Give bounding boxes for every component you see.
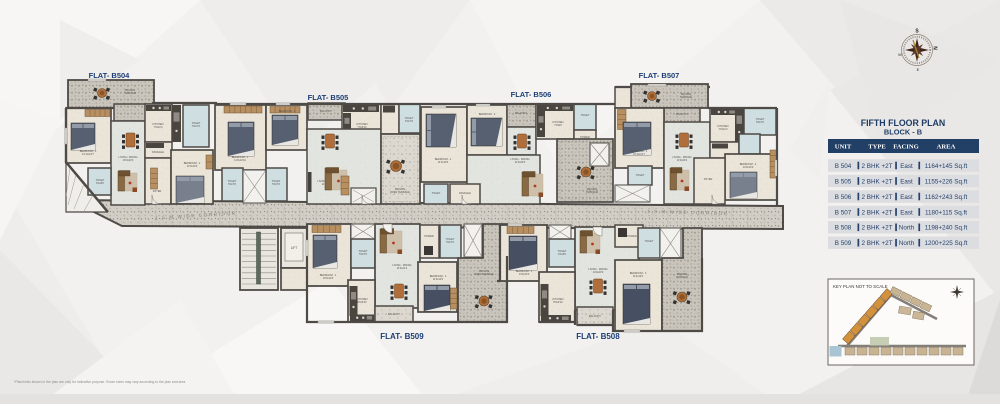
svg-text:LIFT: LIFT — [291, 246, 298, 250]
svg-text:W: W — [898, 52, 902, 57]
svg-text:TOILET6'1x8'0: TOILET6'1x8'0 — [558, 250, 567, 256]
svg-text:BALCONY: BALCONY — [388, 313, 400, 316]
svg-text:TOILET5'0x7'6: TOILET5'0x7'6 — [272, 180, 281, 186]
svg-text:PRIVATETERRACE: PRIVATETERRACE — [124, 89, 136, 95]
svg-text:PRIVATETERRACE: PRIVATETERRACE — [586, 188, 598, 194]
svg-text:KITCHEN8'0x9'10: KITCHEN8'0x9'10 — [553, 298, 564, 304]
svg-text:FLAT- B505: FLAT- B505 — [308, 93, 349, 102]
svg-text:FLAT- B506: FLAT- B506 — [511, 90, 552, 99]
svg-text:UNIT: UNIT — [835, 144, 852, 151]
svg-text:PASSAGE: PASSAGE — [459, 192, 471, 195]
svg-text:PRIVATETERRACE: PRIVATETERRACE — [676, 273, 688, 279]
svg-text:PRIVATETERRACE: PRIVATETERRACE — [680, 93, 692, 99]
svg-text:KEY PLAN NOT TO SCALE: KEY PLAN NOT TO SCALE — [833, 284, 888, 289]
svg-text:TOILET: TOILET — [645, 240, 654, 243]
svg-text:FLAT- B507: FLAT- B507 — [639, 71, 680, 80]
svg-text:FACING: FACING — [893, 144, 919, 151]
svg-text:BALCONY: BALCONY — [589, 315, 601, 318]
svg-text:FOYER: FOYER — [153, 190, 162, 193]
svg-text:BALCONY: BALCONY — [320, 110, 332, 113]
svg-text:AREA: AREA — [937, 144, 956, 151]
svg-text:BALCONY: BALCONY — [515, 112, 527, 115]
svg-text:N: N — [932, 46, 938, 50]
svg-text:TOILET5'0x7'6: TOILET5'0x7'6 — [228, 180, 237, 186]
svg-text:TOILET5'0x7'6: TOILET5'0x7'6 — [192, 122, 201, 128]
svg-text:KITCHEN7'0x11'0: KITCHEN7'0x11'0 — [718, 125, 729, 131]
svg-text:BEDROOM - 2: BEDROOM - 2 — [279, 110, 296, 113]
svg-text:KITCHEN8'0x9'10: KITCHEN8'0x9'10 — [357, 298, 368, 304]
svg-text:TOILET6'1x8'0: TOILET6'1x8'0 — [96, 179, 105, 185]
svg-text:E: E — [917, 67, 920, 72]
svg-text:KITCHEN7'0x11'0: KITCHEN7'0x11'0 — [153, 123, 164, 129]
svg-text:FLAT- B509: FLAT- B509 — [380, 332, 424, 341]
svg-text:PASSAGE: PASSAGE — [152, 151, 164, 154]
svg-text:TOILET5'0x7'6: TOILET5'0x7'6 — [446, 238, 455, 244]
svg-text:BALCONY: BALCONY — [676, 113, 688, 116]
svg-text:POWER: POWER — [627, 235, 637, 238]
svg-text:POWER: POWER — [424, 235, 434, 238]
svg-text:TOILET5'0x7'6: TOILET5'0x7'6 — [405, 117, 414, 123]
svg-text:FOYER: FOYER — [704, 178, 713, 181]
svg-text:BEDROOM - 2: BEDROOM - 2 — [479, 113, 496, 116]
svg-text:FLAT- B504: FLAT- B504 — [89, 71, 131, 80]
svg-text:TOILET5'0x7'6: TOILET5'0x7'6 — [359, 250, 368, 256]
svg-text:TOILET: TOILET — [581, 114, 590, 117]
svg-text:TOILET: TOILET — [432, 192, 441, 195]
svg-text:TOILET5'0x7'6: TOILET5'0x7'6 — [756, 118, 765, 124]
svg-text:TYPE: TYPE — [868, 144, 886, 151]
svg-text:TOILET: TOILET — [636, 174, 645, 177]
svg-text:FLAT- B508: FLAT- B508 — [576, 332, 620, 341]
svg-text:FIFTH FLOOR PLAN: FIFTH FLOOR PLAN — [861, 118, 946, 128]
svg-text:KITCHEN7'0x9'10: KITCHEN7'0x9'10 — [357, 123, 368, 129]
svg-text:BLOCK - B: BLOCK - B — [884, 128, 922, 137]
svg-text:*Plan/Units shown in the plan: *Plan/Units shown in the plan are only f… — [14, 380, 185, 384]
